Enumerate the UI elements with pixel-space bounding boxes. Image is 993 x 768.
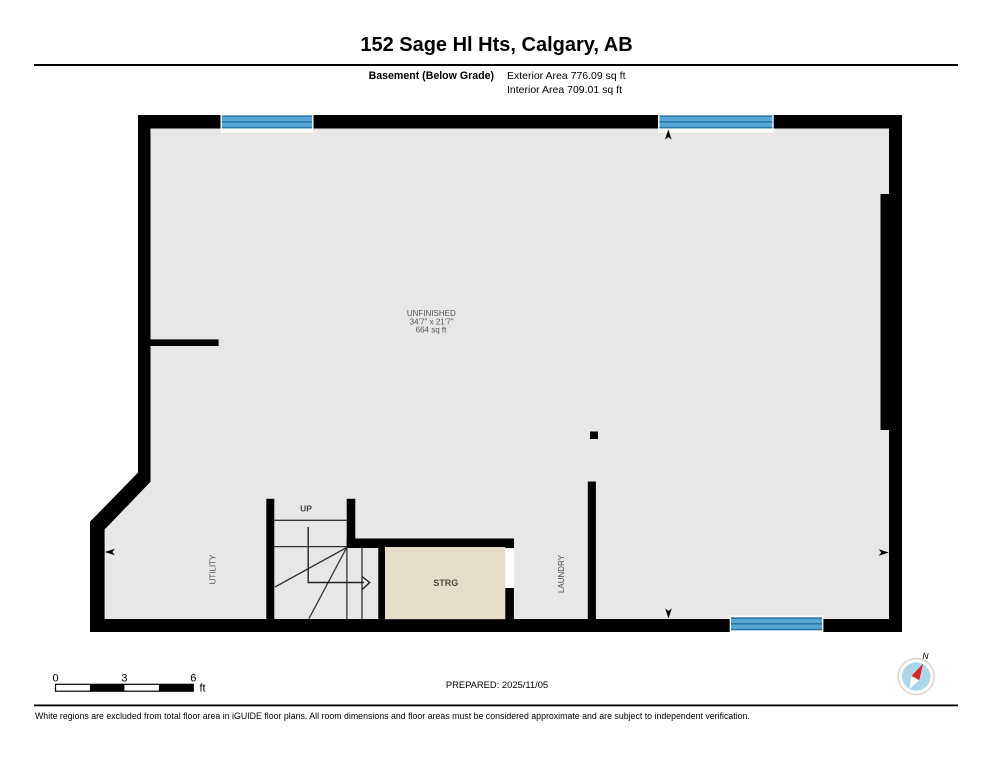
svg-text:UP: UP (300, 504, 312, 514)
svg-text:664 sq ft: 664 sq ft (416, 326, 447, 335)
svg-text:0: 0 (52, 673, 58, 685)
svg-text:UTILITY: UTILITY (209, 554, 218, 584)
svg-text:LAUNDRY: LAUNDRY (557, 554, 566, 593)
svg-text:PREPARED: 2025/11/05: PREPARED: 2025/11/05 (446, 679, 548, 690)
svg-text:White regions are excluded fro: White regions are excluded from total fl… (35, 711, 750, 721)
svg-text:3: 3 (121, 673, 127, 685)
svg-text:N: N (922, 651, 929, 661)
svg-text:STRG: STRG (433, 578, 458, 588)
svg-text:ft: ft (200, 683, 206, 695)
svg-text:6: 6 (190, 673, 196, 685)
